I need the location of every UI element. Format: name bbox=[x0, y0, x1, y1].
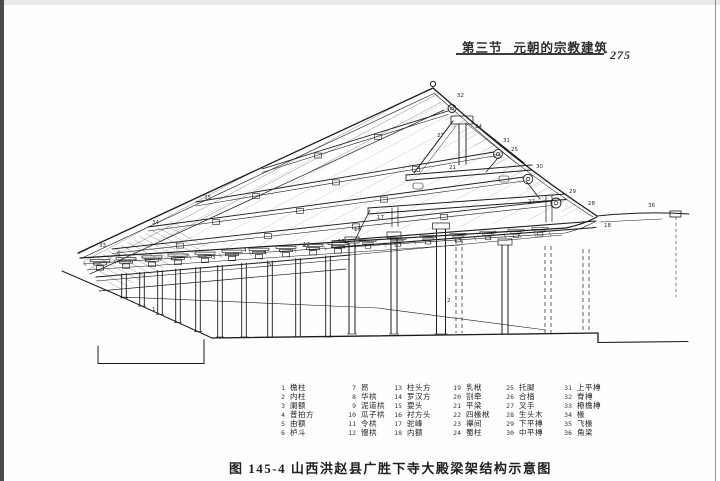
legend-item-number: 8 bbox=[345, 393, 356, 402]
part-label: 21 bbox=[449, 165, 456, 171]
part-label: 30 bbox=[536, 164, 543, 170]
legend-item-term: 中平槫 bbox=[519, 429, 543, 438]
part-label: 18 bbox=[604, 223, 611, 229]
legend-item-number: 12 bbox=[345, 429, 356, 438]
part-label: 23 bbox=[494, 154, 501, 160]
part-label: 19 bbox=[354, 227, 361, 233]
legend-item-number: 33 bbox=[561, 402, 572, 411]
book-page: 第三节元朝的宗教建筑 275 bbox=[0, 0, 720, 481]
legend-item-number: 26 bbox=[503, 393, 514, 402]
legend-item-number: 11 bbox=[345, 420, 356, 429]
legend-item-number: 5 bbox=[274, 420, 285, 429]
legend-item-number: 19 bbox=[450, 384, 461, 393]
legend-item-number: 7 bbox=[345, 384, 356, 393]
legend-column: 25托脚26合㭼27叉手28生头木29下平槫30中平槫 bbox=[503, 384, 543, 437]
legend-column: 1檐柱2内柱3阑额4普拍方5由额6栌斗 bbox=[274, 384, 314, 437]
legend-item-number: 25 bbox=[503, 384, 514, 393]
legend-item-number: 4 bbox=[274, 411, 285, 420]
legend-item-number: 6 bbox=[274, 429, 285, 438]
platform-ground bbox=[62, 271, 688, 364]
part-label: 2 bbox=[447, 298, 451, 304]
figure-caption: 图 145-4 山西洪赵县广胜下寺大殿梁架结构示意图 bbox=[229, 458, 552, 477]
part-label: 29 bbox=[569, 189, 576, 195]
legend-item-number: 15 bbox=[391, 402, 402, 411]
legend-item-number: 16 bbox=[391, 411, 402, 420]
part-label: 27 bbox=[437, 133, 444, 139]
legend-item-term: 慢栱 bbox=[361, 429, 377, 438]
part-label: 22 bbox=[528, 199, 535, 205]
legend-item: 24蜀柱 bbox=[450, 429, 490, 438]
part-label: 12 bbox=[303, 242, 310, 248]
legend-item-number: 10 bbox=[345, 411, 356, 420]
part-label: 6 bbox=[117, 251, 121, 257]
legend-item-number: 22 bbox=[450, 411, 461, 420]
legend-item-number: 18 bbox=[391, 429, 402, 438]
legend-item-term: 蜀柱 bbox=[466, 429, 482, 438]
legend-column: 31上平槫32脊槫33橑檐槫34椽35飞椽36角梁 bbox=[561, 384, 601, 437]
legend-item-number: 31 bbox=[561, 384, 572, 393]
legend-item: 30中平槫 bbox=[503, 429, 543, 438]
legend-item-number: 24 bbox=[450, 429, 461, 438]
legend-item-number: 13 bbox=[391, 384, 402, 393]
part-label: 32 bbox=[457, 93, 464, 99]
legend-item-number: 2 bbox=[274, 393, 285, 402]
part-label: 5 bbox=[268, 262, 272, 268]
part-label: 34 bbox=[152, 220, 159, 226]
legend-item-number: 29 bbox=[503, 420, 514, 429]
legend-item-number: 32 bbox=[561, 393, 572, 402]
part-label: 28 bbox=[588, 201, 595, 207]
part-label: 4 bbox=[243, 248, 247, 254]
part-label: 25 bbox=[511, 147, 518, 153]
legend-item-term: 栌斗 bbox=[290, 429, 306, 438]
legend-item-term: 角梁 bbox=[577, 429, 593, 438]
part-label: 35 bbox=[204, 195, 211, 201]
legend-item-number: 20 bbox=[450, 393, 461, 402]
part-label: 3 bbox=[212, 255, 216, 261]
legend-item-number: 21 bbox=[450, 402, 461, 411]
legend-item-number: 30 bbox=[503, 429, 514, 438]
part-label: 1 bbox=[152, 307, 156, 313]
legend-item: 6栌斗 bbox=[274, 429, 314, 438]
legend-item: 12慢栱 bbox=[345, 429, 385, 438]
legend-column: 19乳栿20劄牵21平梁22四椽栿23襻间24蜀柱 bbox=[450, 384, 490, 437]
legend-item-number: 1 bbox=[274, 384, 285, 393]
legend-item-number: 35 bbox=[561, 420, 572, 429]
legend-item-number: 36 bbox=[561, 429, 572, 438]
legend-item-number: 28 bbox=[503, 411, 514, 420]
legend-item-number: 14 bbox=[391, 393, 402, 402]
legend-column: 7昂8华栱9泥道栱10瓜子栱11令栱12慢栱 bbox=[345, 384, 385, 437]
part-label: 33 bbox=[99, 243, 106, 249]
part-label: 17 bbox=[377, 215, 384, 221]
legend-item-term: 内额 bbox=[407, 429, 423, 438]
legend-item-number: 27 bbox=[503, 402, 514, 411]
part-label: 31 bbox=[503, 138, 510, 144]
legend-item-number: 34 bbox=[561, 411, 572, 420]
legend-item-number: 23 bbox=[450, 420, 461, 429]
part-label: 36 bbox=[648, 203, 655, 209]
part-label: 13 bbox=[338, 239, 345, 245]
legend-column: 13柱头方14罗汉方15耍头16衬方头17驼峰18内额 bbox=[391, 384, 431, 437]
legend-item-number: 9 bbox=[345, 402, 356, 411]
part-label: 24 bbox=[475, 124, 482, 130]
legend-item-number: 3 bbox=[274, 402, 285, 411]
legend-item-number: 17 bbox=[391, 420, 402, 429]
legend-item: 36角梁 bbox=[561, 429, 601, 438]
legend-item: 18内额 bbox=[391, 429, 431, 438]
